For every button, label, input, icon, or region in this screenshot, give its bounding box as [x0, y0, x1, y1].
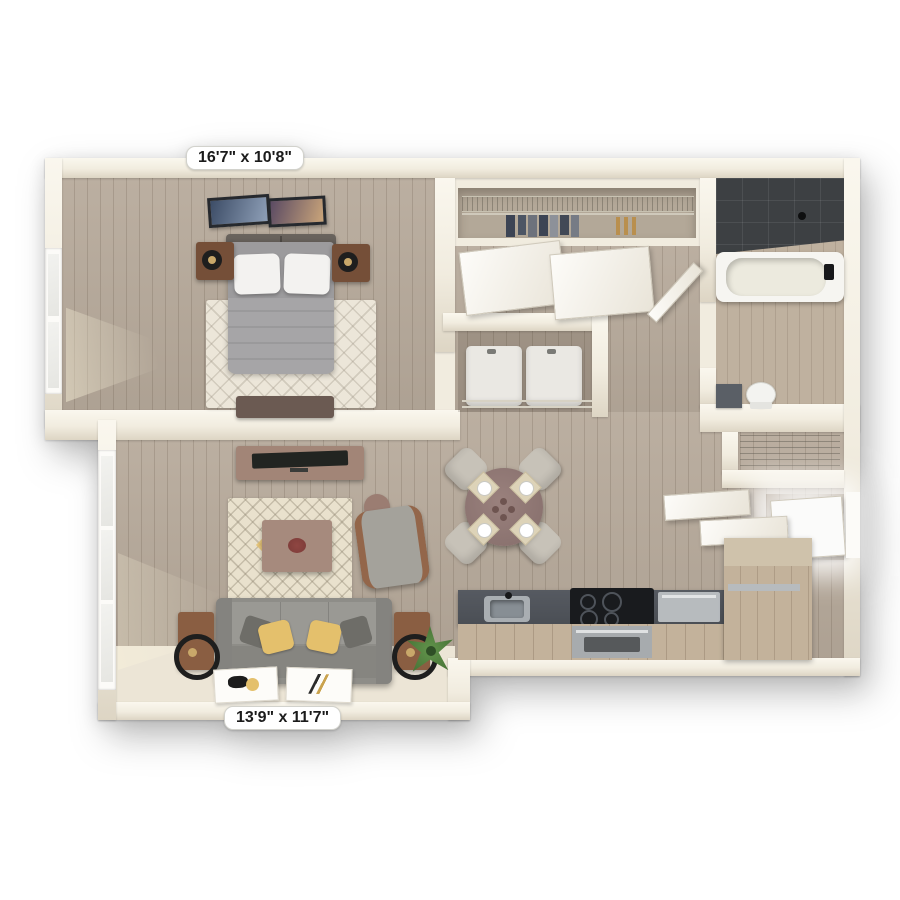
art-print-right-motif	[292, 673, 345, 695]
arc-lamp-left-bulb	[188, 648, 197, 657]
window-pane	[101, 530, 113, 600]
living-room	[0, 0, 900, 900]
art-print-left-accent	[246, 678, 259, 691]
plant-center	[426, 646, 436, 656]
window-pane	[101, 604, 113, 682]
sofa-arm-right	[376, 598, 392, 684]
apartment-floor-plan: 16'7" x 10'8" 13'9" x 11'7"	[0, 0, 900, 900]
bedroom-dimensions-label: 16'7" x 10'8"	[186, 146, 304, 170]
centerpiece-flowers	[288, 538, 306, 553]
window-pane	[101, 456, 113, 526]
living-room-dimensions-label: 13'9" x 11'7"	[224, 706, 341, 730]
floor-plan-image: 16'7" x 10'8" 13'9" x 11'7"	[0, 0, 900, 900]
armchair	[353, 504, 431, 591]
tv-stand	[290, 468, 308, 472]
arc-lamp-right-bulb	[406, 648, 415, 657]
throw-pillow-yellow	[305, 619, 343, 655]
